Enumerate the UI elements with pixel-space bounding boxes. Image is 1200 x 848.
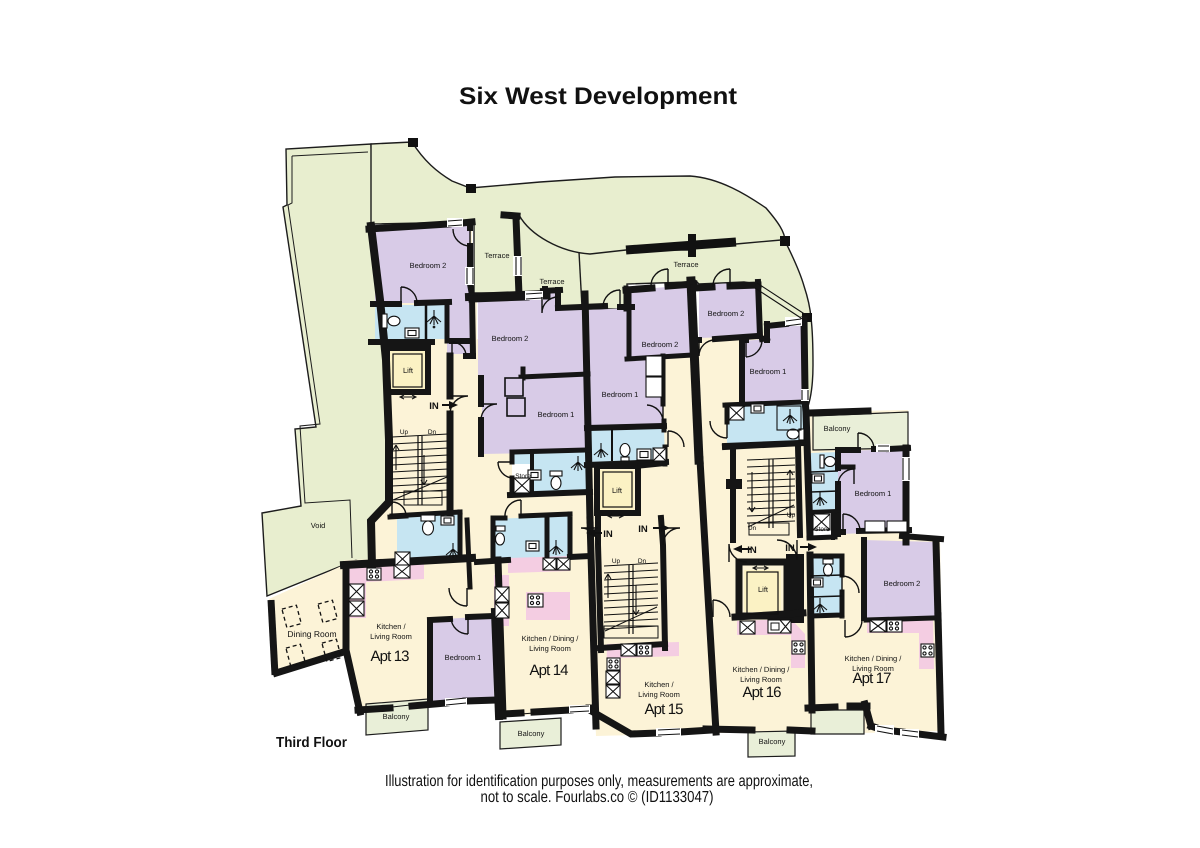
svg-text:Living Room: Living Room	[740, 675, 782, 684]
svg-text:Third Floor: Third Floor	[276, 735, 347, 751]
svg-text:Terrace: Terrace	[484, 251, 509, 260]
svg-text:Balcony: Balcony	[383, 712, 410, 721]
svg-text:Apt 15: Apt 15	[645, 701, 684, 718]
svg-text:Lift: Lift	[612, 486, 623, 495]
svg-text:Bedroom 1: Bedroom 1	[445, 653, 482, 662]
svg-text:Balcony: Balcony	[824, 424, 851, 433]
svg-text:Store: Store	[515, 473, 531, 480]
svg-text:Bedroom 1: Bedroom 1	[750, 367, 787, 376]
svg-text:Kitchen / Dining /: Kitchen / Dining /	[845, 654, 903, 663]
svg-text:Bedroom 2: Bedroom 2	[492, 334, 529, 343]
svg-text:Kitchen /: Kitchen /	[644, 680, 674, 689]
svg-text:Living Room: Living Room	[529, 644, 571, 653]
svg-text:Living Room: Living Room	[370, 632, 412, 641]
svg-text:Six West Development: Six West Development	[459, 83, 737, 110]
svg-text:Illustration for identificatio: Illustration for identification purposes…	[385, 773, 813, 790]
svg-text:Bedroom 2: Bedroom 2	[410, 261, 447, 270]
svg-text:Lift: Lift	[403, 366, 414, 375]
svg-text:Apt 16: Apt 16	[743, 684, 782, 701]
svg-text:Terrace: Terrace	[539, 277, 564, 286]
svg-text:IN: IN	[638, 524, 648, 535]
svg-text:Dn: Dn	[748, 525, 757, 532]
svg-text:Void: Void	[311, 521, 326, 530]
svg-text:Living Room: Living Room	[638, 690, 680, 699]
svg-text:Dn: Dn	[638, 558, 647, 565]
svg-text:IN: IN	[429, 401, 439, 412]
svg-text:Up: Up	[612, 558, 621, 565]
svg-text:Balcony: Balcony	[759, 737, 786, 746]
svg-text:Store: Store	[814, 526, 830, 533]
svg-text:not to scale. Fourlabs.co © (I: not to scale. Fourlabs.co © (ID1133047)	[481, 789, 714, 806]
svg-text:Balcony: Balcony	[518, 729, 545, 738]
svg-text:Bedroom 2: Bedroom 2	[708, 309, 745, 318]
svg-text:Kitchen / Dining /: Kitchen / Dining /	[733, 665, 791, 674]
svg-text:Dining Room: Dining Room	[287, 629, 336, 639]
svg-text:Bedroom 1: Bedroom 1	[602, 390, 639, 399]
svg-text:Lift: Lift	[758, 585, 769, 594]
svg-text:Dn: Dn	[428, 429, 437, 436]
svg-text:Terrace: Terrace	[673, 260, 698, 269]
svg-text:Kitchen /: Kitchen /	[376, 622, 406, 631]
svg-text:IN: IN	[747, 545, 757, 556]
svg-text:Bedroom 1: Bedroom 1	[855, 489, 892, 498]
svg-text:Apt 14: Apt 14	[530, 662, 569, 679]
svg-text:Bedroom 2: Bedroom 2	[642, 340, 679, 349]
svg-text:IN: IN	[603, 529, 613, 540]
svg-text:IN: IN	[785, 543, 795, 554]
svg-text:Kitchen / Dining /: Kitchen / Dining /	[522, 634, 580, 643]
svg-text:Bedroom 1: Bedroom 1	[538, 410, 575, 419]
svg-text:Up: Up	[400, 429, 409, 436]
svg-text:Up: Up	[787, 512, 796, 519]
svg-text:Bedroom 2: Bedroom 2	[884, 579, 921, 588]
svg-text:Apt 17: Apt 17	[853, 670, 892, 687]
svg-text:Apt 13: Apt 13	[371, 648, 410, 665]
